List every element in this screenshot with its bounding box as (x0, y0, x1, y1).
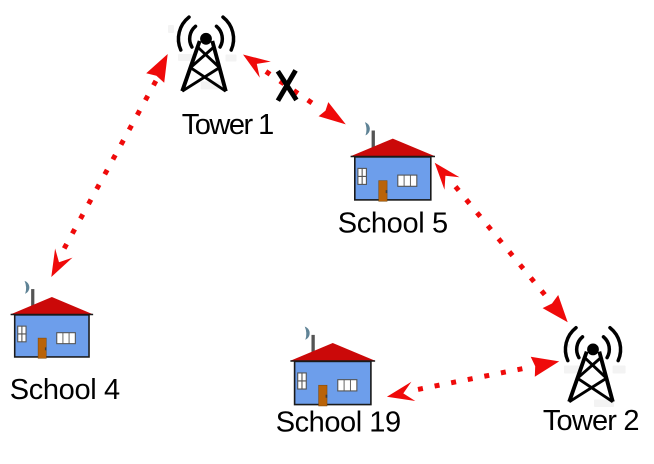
svg-text:School 5: School 5 (338, 208, 448, 240)
svg-text:Tower 1: Tower 1 (182, 109, 273, 141)
svg-text:School 4: School 4 (10, 374, 120, 406)
svg-text:Tower 2: Tower 2 (543, 405, 639, 437)
svg-text:School 19: School 19 (276, 407, 401, 439)
